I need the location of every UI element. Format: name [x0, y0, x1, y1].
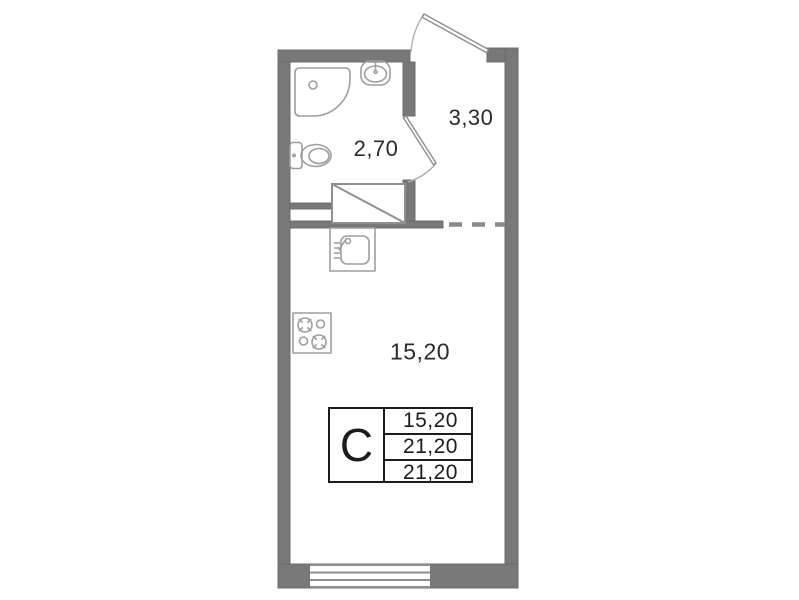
floor-plan-drawing [0, 0, 799, 600]
floor-plan: 2,70 3,30 15,20 С 15,20 21,20 21,20 [0, 0, 799, 600]
window-icon [310, 564, 430, 588]
shower-icon [295, 68, 350, 116]
kitchen-sink-icon [330, 228, 375, 271]
left-wall [278, 50, 290, 588]
bathroom-sink-icon [361, 61, 390, 85]
bathroom-door-icon [403, 116, 436, 182]
legend-table: С 15,20 21,20 21,20 [328, 407, 473, 483]
entrance-door-icon [411, 14, 489, 53]
legend-living-area: 15,20 [385, 409, 471, 435]
bathroom-bottom-wall [290, 203, 332, 209]
legend-values: 15,20 21,20 21,20 [385, 409, 471, 481]
hall-area-label: 3,30 [449, 105, 494, 131]
right-wall [505, 48, 518, 588]
bathroom-right-wall-upper [403, 62, 415, 116]
legend-unit-type: С [330, 409, 385, 481]
top-wall [278, 50, 410, 62]
bathroom-area-label: 2,70 [354, 136, 399, 162]
legend-overall-area: 21,20 [385, 461, 471, 485]
toilet-icon [290, 143, 331, 169]
legend-total-area: 21,20 [385, 435, 471, 461]
stove-icon [293, 313, 331, 353]
wardrobe-icon [332, 184, 405, 223]
room-area-label: 15,20 [390, 339, 450, 366]
